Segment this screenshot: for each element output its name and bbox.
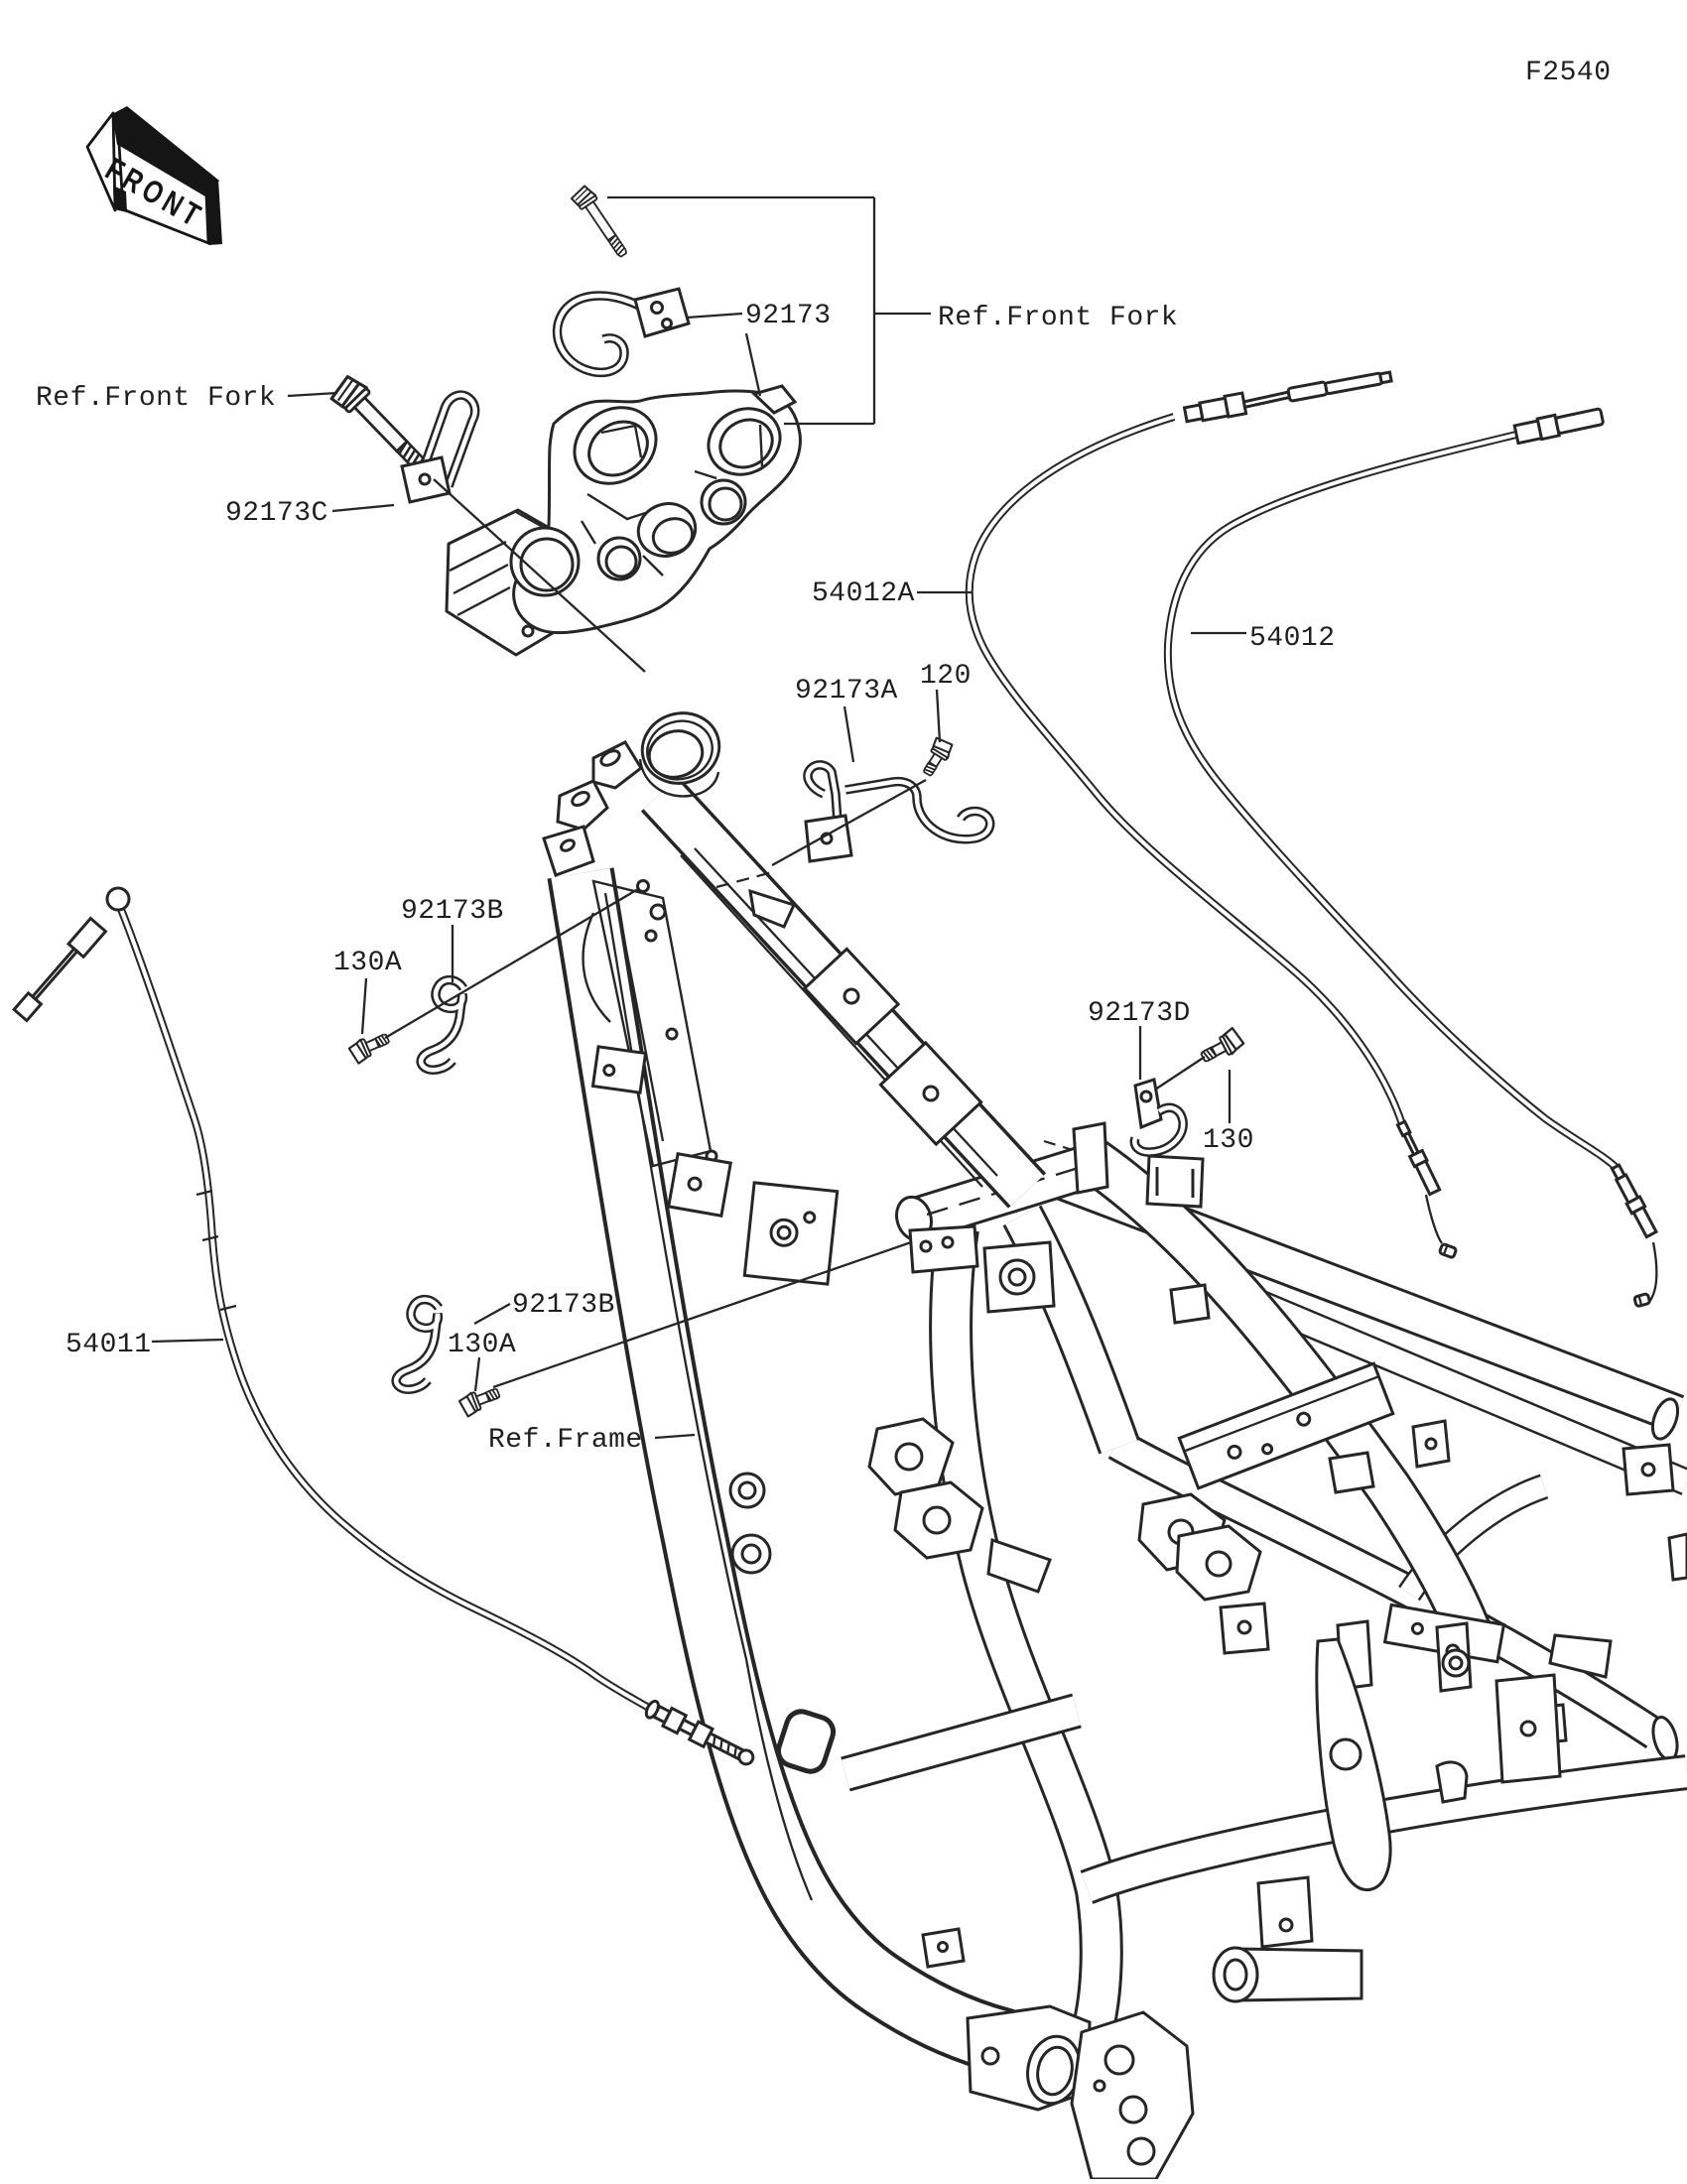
- svg-text:92173: 92173: [745, 301, 832, 331]
- svg-text:92173A: 92173A: [795, 676, 898, 707]
- svg-text:92173C: 92173C: [225, 498, 328, 529]
- svg-text:130A: 130A: [448, 1330, 516, 1360]
- svg-text:54011: 54011: [65, 1330, 152, 1360]
- svg-text:130: 130: [1203, 1125, 1254, 1156]
- svg-text:54012A: 54012A: [812, 578, 915, 609]
- svg-text:Ref.Frame: Ref.Frame: [488, 1425, 643, 1456]
- svg-text:92173B: 92173B: [512, 1290, 615, 1321]
- svg-text:Ref.Front Fork: Ref.Front Fork: [938, 303, 1178, 333]
- svg-text:F2540: F2540: [1525, 58, 1612, 88]
- svg-text:92173B: 92173B: [401, 896, 504, 927]
- svg-text:120: 120: [920, 661, 972, 692]
- svg-text:130A: 130A: [333, 948, 402, 978]
- svg-text:Ref.Front Fork: Ref.Front Fork: [36, 383, 276, 414]
- svg-text:54012: 54012: [1249, 623, 1336, 654]
- svg-text:92173D: 92173D: [1088, 998, 1191, 1029]
